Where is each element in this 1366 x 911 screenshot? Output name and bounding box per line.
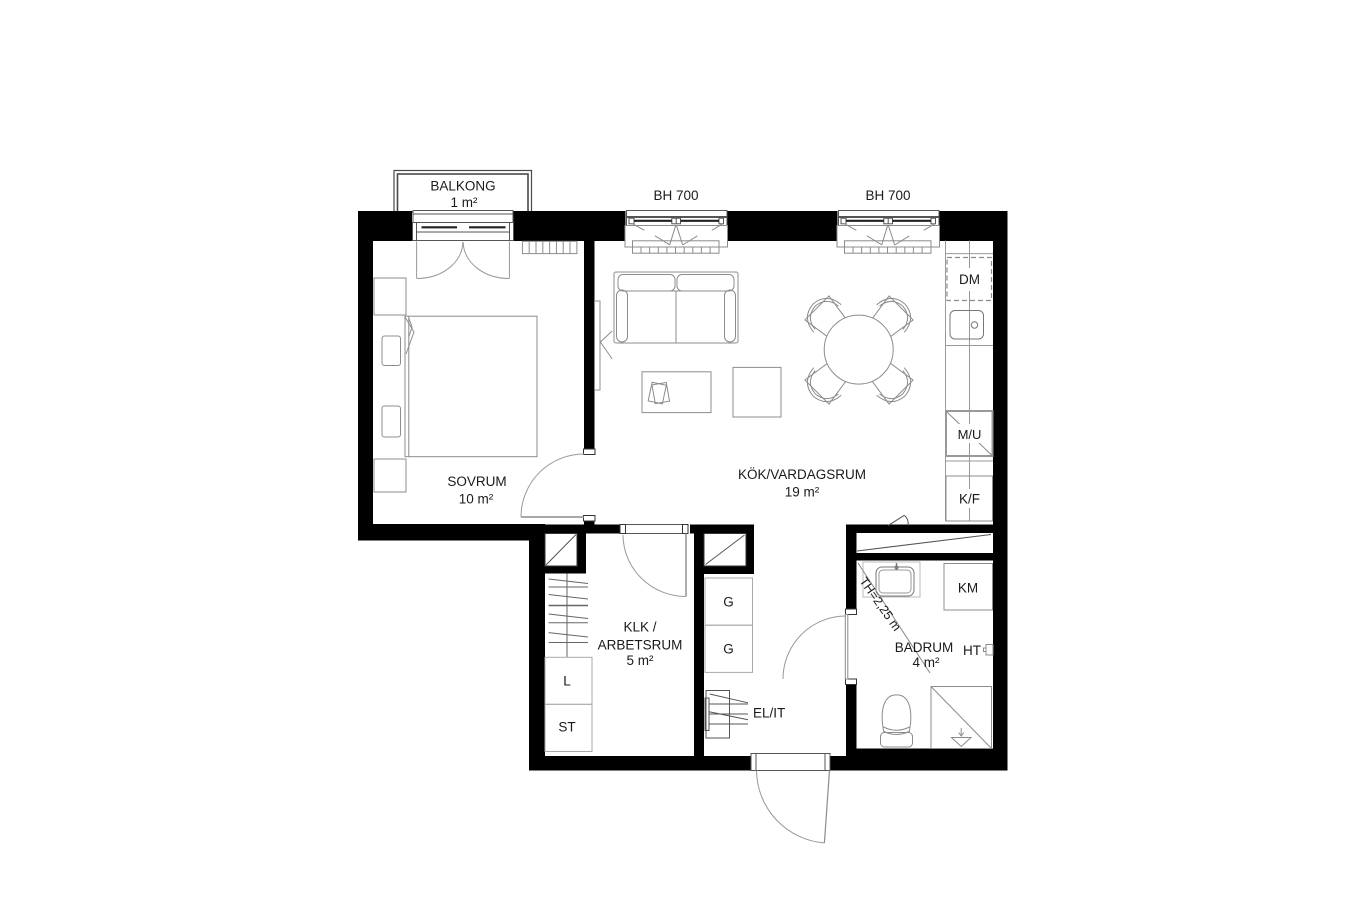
svg-text:ARBETSRUM: ARBETSRUM bbox=[598, 638, 683, 653]
svg-text:5 m²: 5 m² bbox=[627, 653, 655, 668]
svg-text:L: L bbox=[563, 674, 571, 689]
svg-text:K/F: K/F bbox=[959, 492, 980, 507]
svg-text:G: G bbox=[723, 595, 734, 610]
svg-text:BALKONG: BALKONG bbox=[430, 179, 495, 194]
svg-text:KLK /: KLK / bbox=[623, 620, 656, 635]
svg-text:10 m²: 10 m² bbox=[459, 492, 494, 507]
svg-text:BADRUM: BADRUM bbox=[895, 640, 954, 655]
svg-text:KÖK/VARDAGSRUM: KÖK/VARDAGSRUM bbox=[738, 467, 866, 482]
svg-text:KM: KM bbox=[958, 581, 978, 596]
svg-text:BH 700: BH 700 bbox=[653, 188, 698, 203]
svg-text:EL/IT: EL/IT bbox=[753, 706, 785, 721]
svg-text:M/U: M/U bbox=[958, 427, 982, 442]
svg-text:HT: HT bbox=[963, 643, 981, 658]
svg-text:G: G bbox=[723, 642, 734, 657]
svg-text:ST: ST bbox=[558, 720, 575, 735]
svg-text:DM: DM bbox=[959, 272, 980, 287]
svg-text:19 m²: 19 m² bbox=[785, 485, 820, 500]
svg-text:1 m²: 1 m² bbox=[451, 195, 479, 210]
svg-text:4 m²: 4 m² bbox=[913, 655, 941, 670]
svg-text:SOVRUM: SOVRUM bbox=[447, 474, 506, 489]
svg-text:BH 700: BH 700 bbox=[865, 188, 910, 203]
